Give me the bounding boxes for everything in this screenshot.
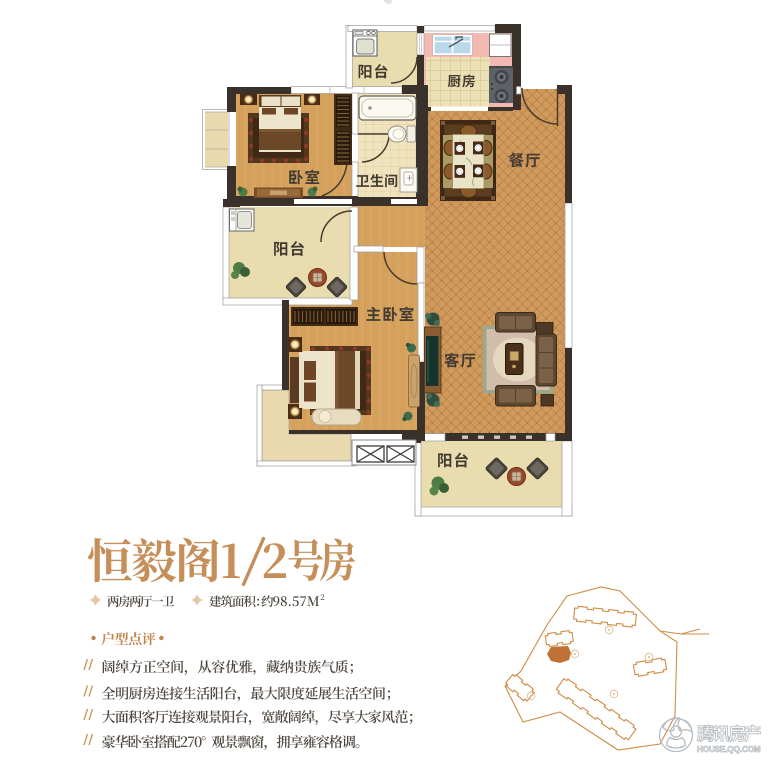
svg-text:HOUSE.QQ.COM: HOUSE.QQ.COM [697, 745, 761, 754]
